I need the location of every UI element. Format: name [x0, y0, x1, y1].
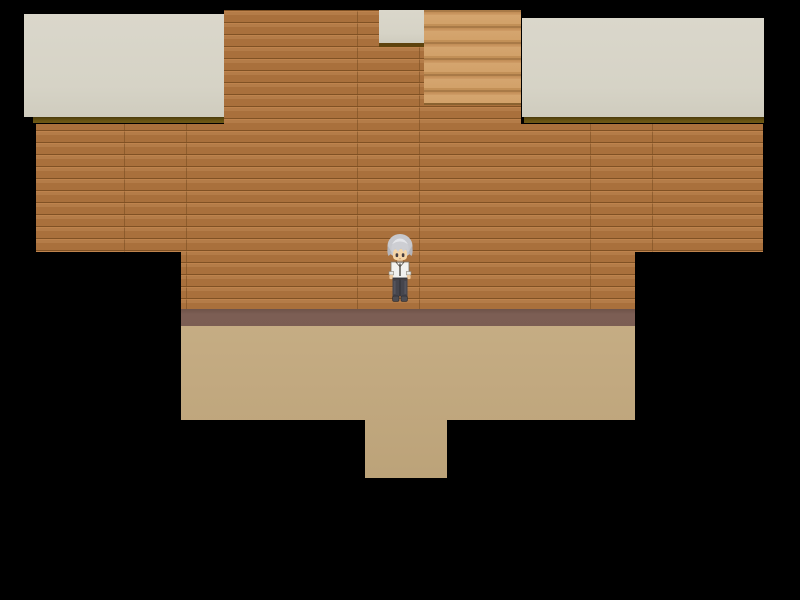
game-viewport[interactable] — [0, 0, 800, 600]
player-character — [384, 232, 416, 304]
player-face — [393, 249, 407, 260]
player-character-sprite — [384, 232, 416, 304]
staircase — [424, 10, 521, 105]
player-torso — [389, 260, 411, 279]
player-legs — [393, 278, 408, 302]
ceiling-shadow-right — [524, 117, 764, 123]
ceiling-shadow-left — [33, 117, 224, 123]
ceiling-panel-small-shadow — [379, 43, 424, 47]
floor — [181, 326, 635, 478]
baseboard — [181, 309, 635, 326]
ceiling-panel-left — [24, 14, 224, 117]
ceiling-panel-small — [379, 10, 424, 43]
ceiling-panel-right — [522, 18, 764, 117]
